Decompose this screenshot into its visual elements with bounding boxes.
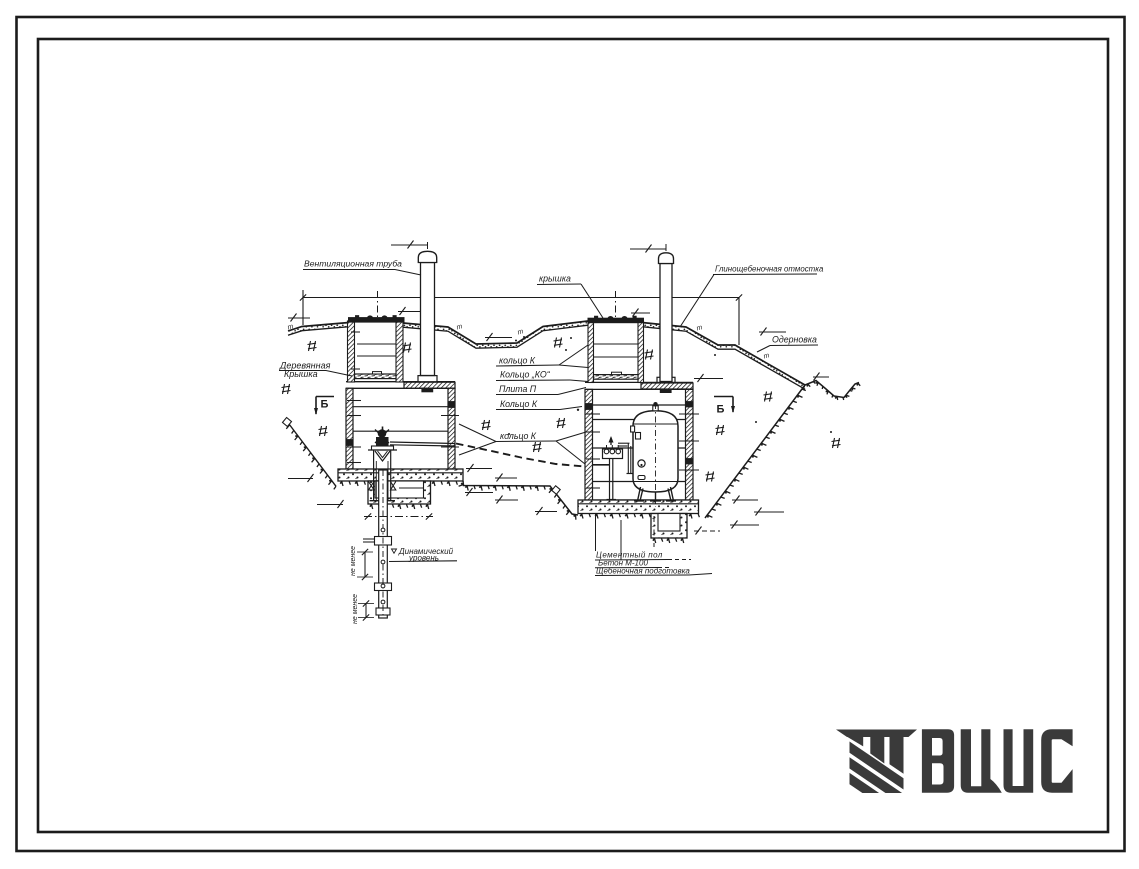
svg-text:Вентиляционная труба: Вентиляционная труба [304,259,402,269]
svg-text:Одерновка: Одерновка [772,335,817,345]
svg-text:Кольцо „КО“: Кольцо „КО“ [500,370,551,380]
svg-text:Плита П: Плита П [499,384,537,394]
svg-text:кольцо К: кольцо К [500,431,537,441]
svg-text:т: т [696,324,704,332]
svg-text:Б: Б [717,404,725,416]
svg-text:крышка: крышка [539,274,571,284]
svg-text:т: т [456,323,464,331]
svg-text:кольцо К: кольцо К [499,356,536,366]
svg-text:Б: Б [321,399,329,411]
svg-text:Кольцо К: Кольцо К [500,399,538,409]
svg-text:т: т [287,323,295,331]
svg-text:Щебеночная подготовка: Щебеночная подготовка [596,567,690,576]
svg-text:т: т [517,328,525,336]
svg-text:т: т [763,352,771,360]
svg-text:не менее: не менее [350,546,357,576]
svg-text:не менее: не менее [352,594,359,624]
svg-text:Глинощебеночная отмостка: Глинощебеночная отмостка [715,265,824,274]
